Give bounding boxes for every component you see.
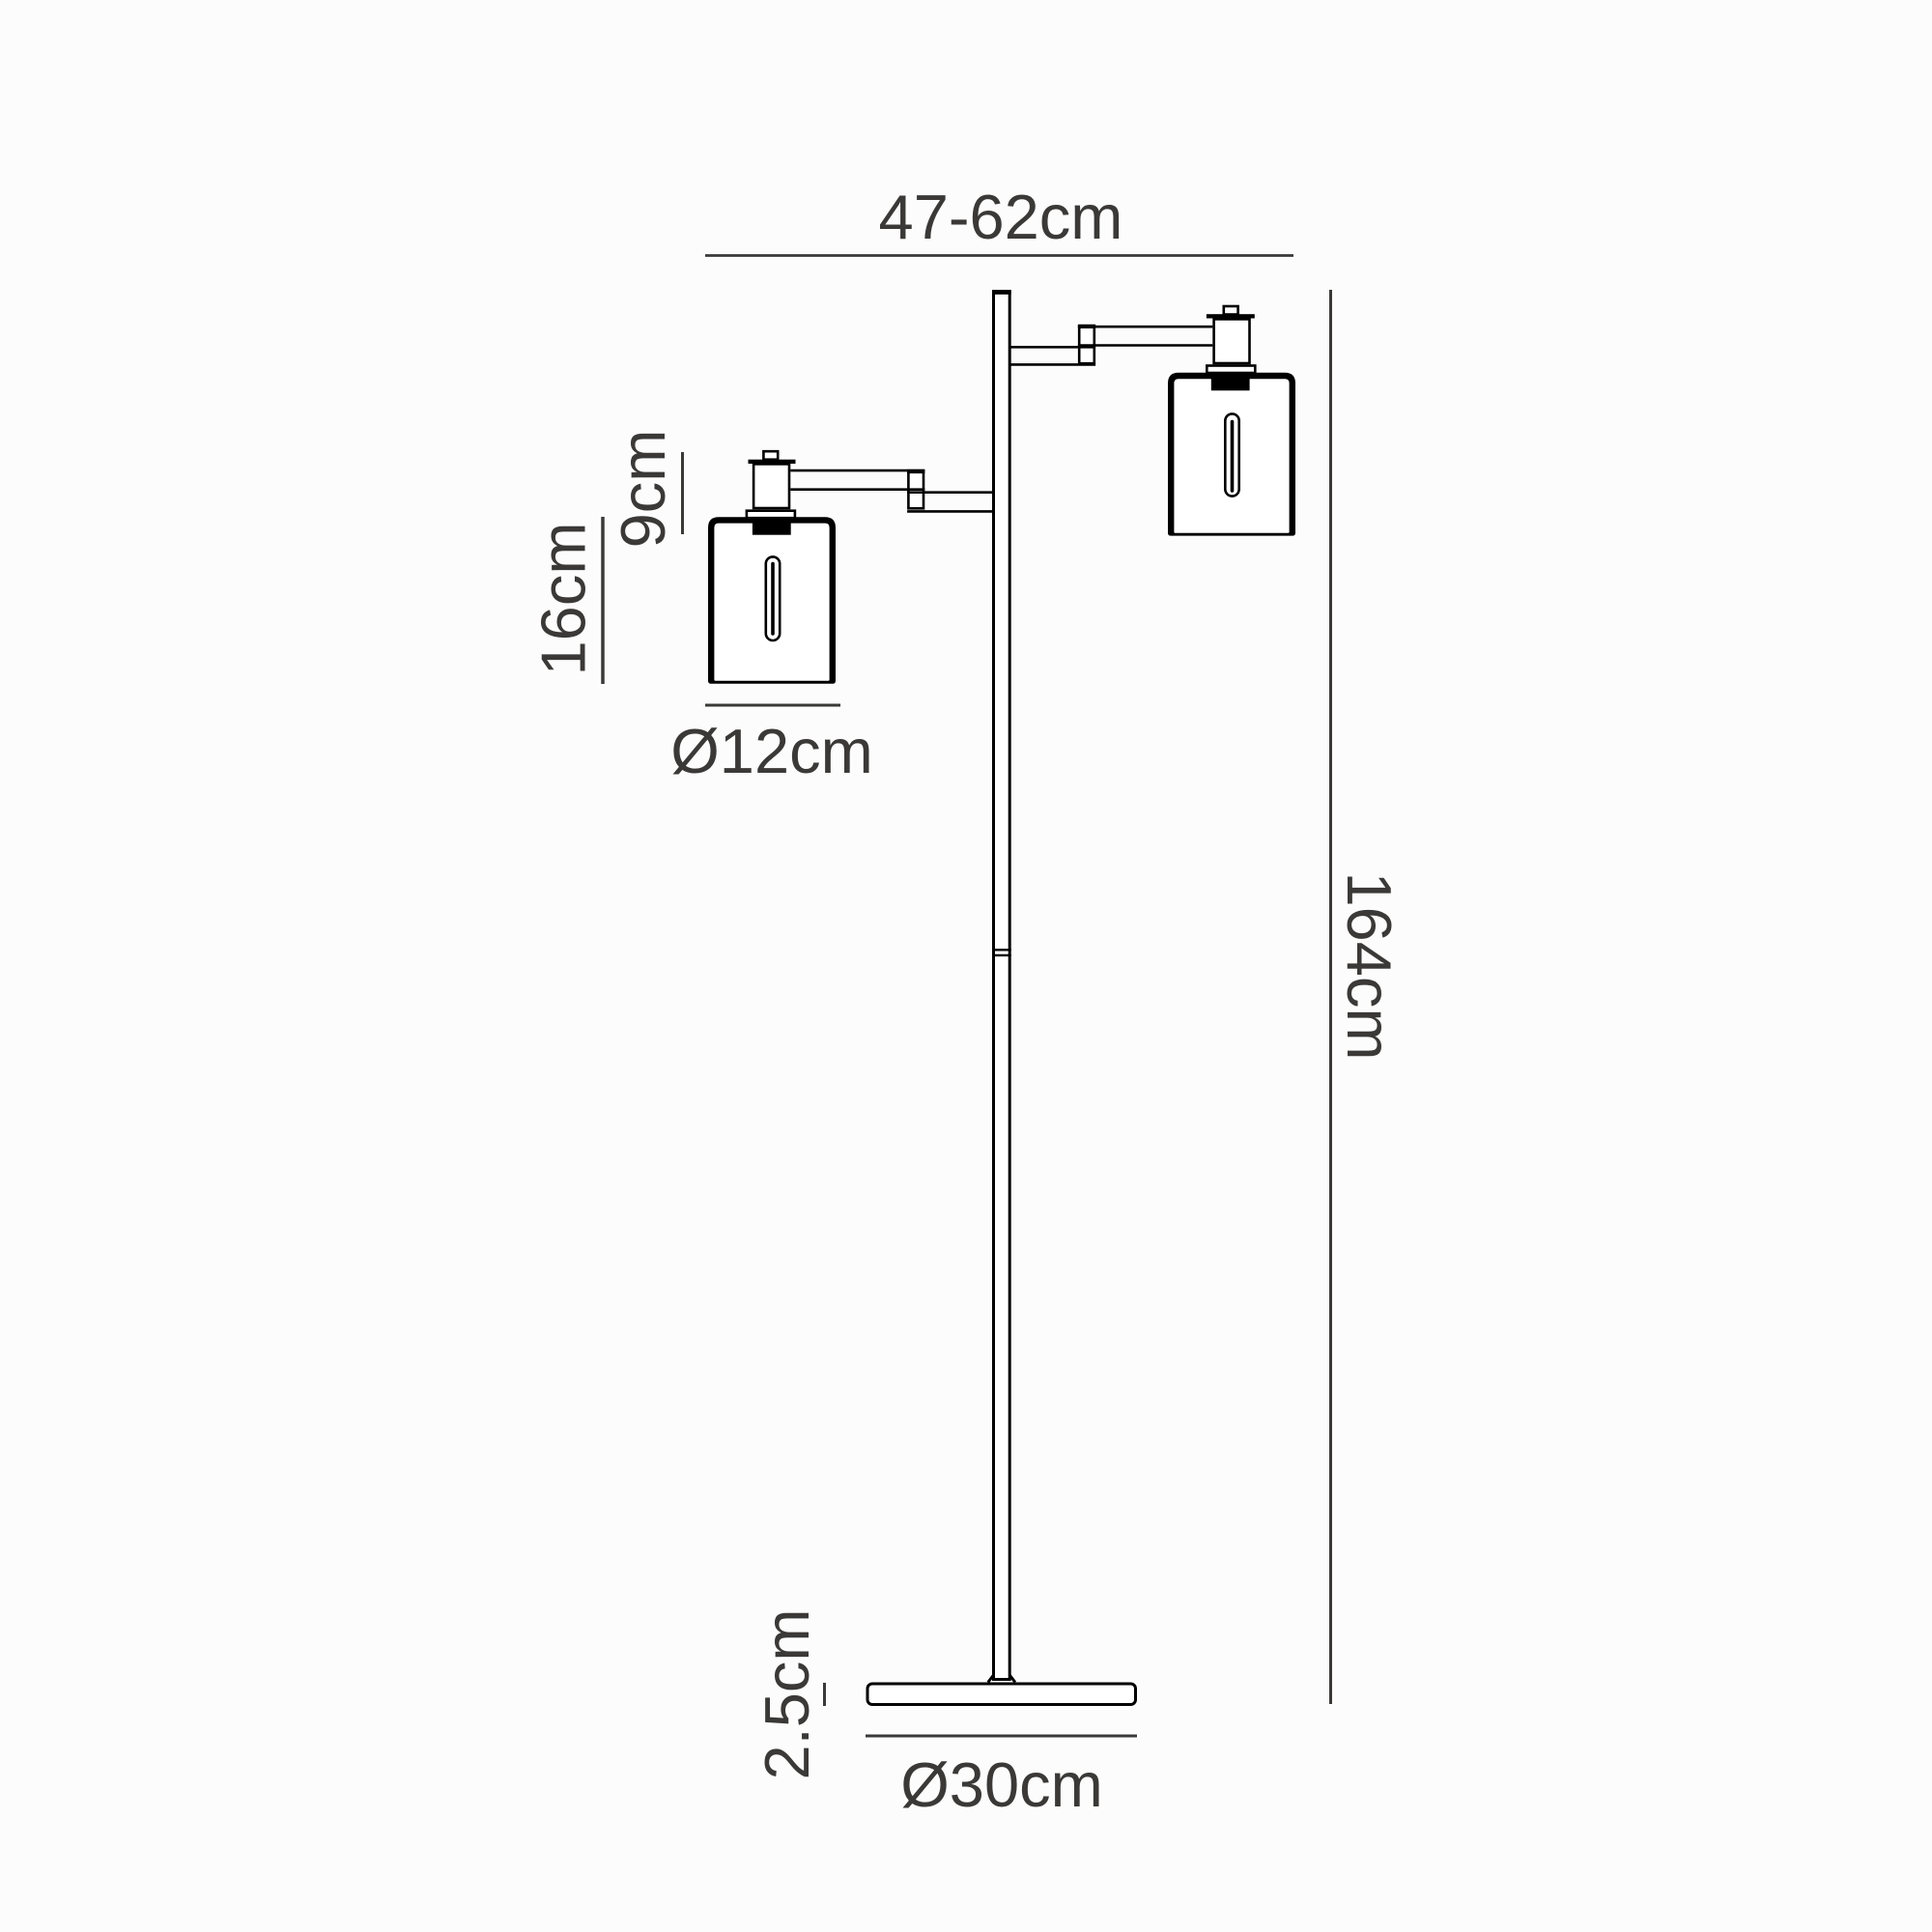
svg-text:16cm: 16cm — [528, 523, 599, 676]
svg-text:Ø12cm: Ø12cm — [670, 716, 873, 786]
svg-text:Ø30cm: Ø30cm — [900, 1749, 1103, 1820]
svg-text:164cm: 164cm — [1334, 871, 1405, 1060]
svg-text:9cm: 9cm — [608, 430, 678, 549]
svg-text:47-62cm: 47-62cm — [879, 182, 1123, 252]
svg-text:2.5cm: 2.5cm — [752, 1608, 822, 1779]
